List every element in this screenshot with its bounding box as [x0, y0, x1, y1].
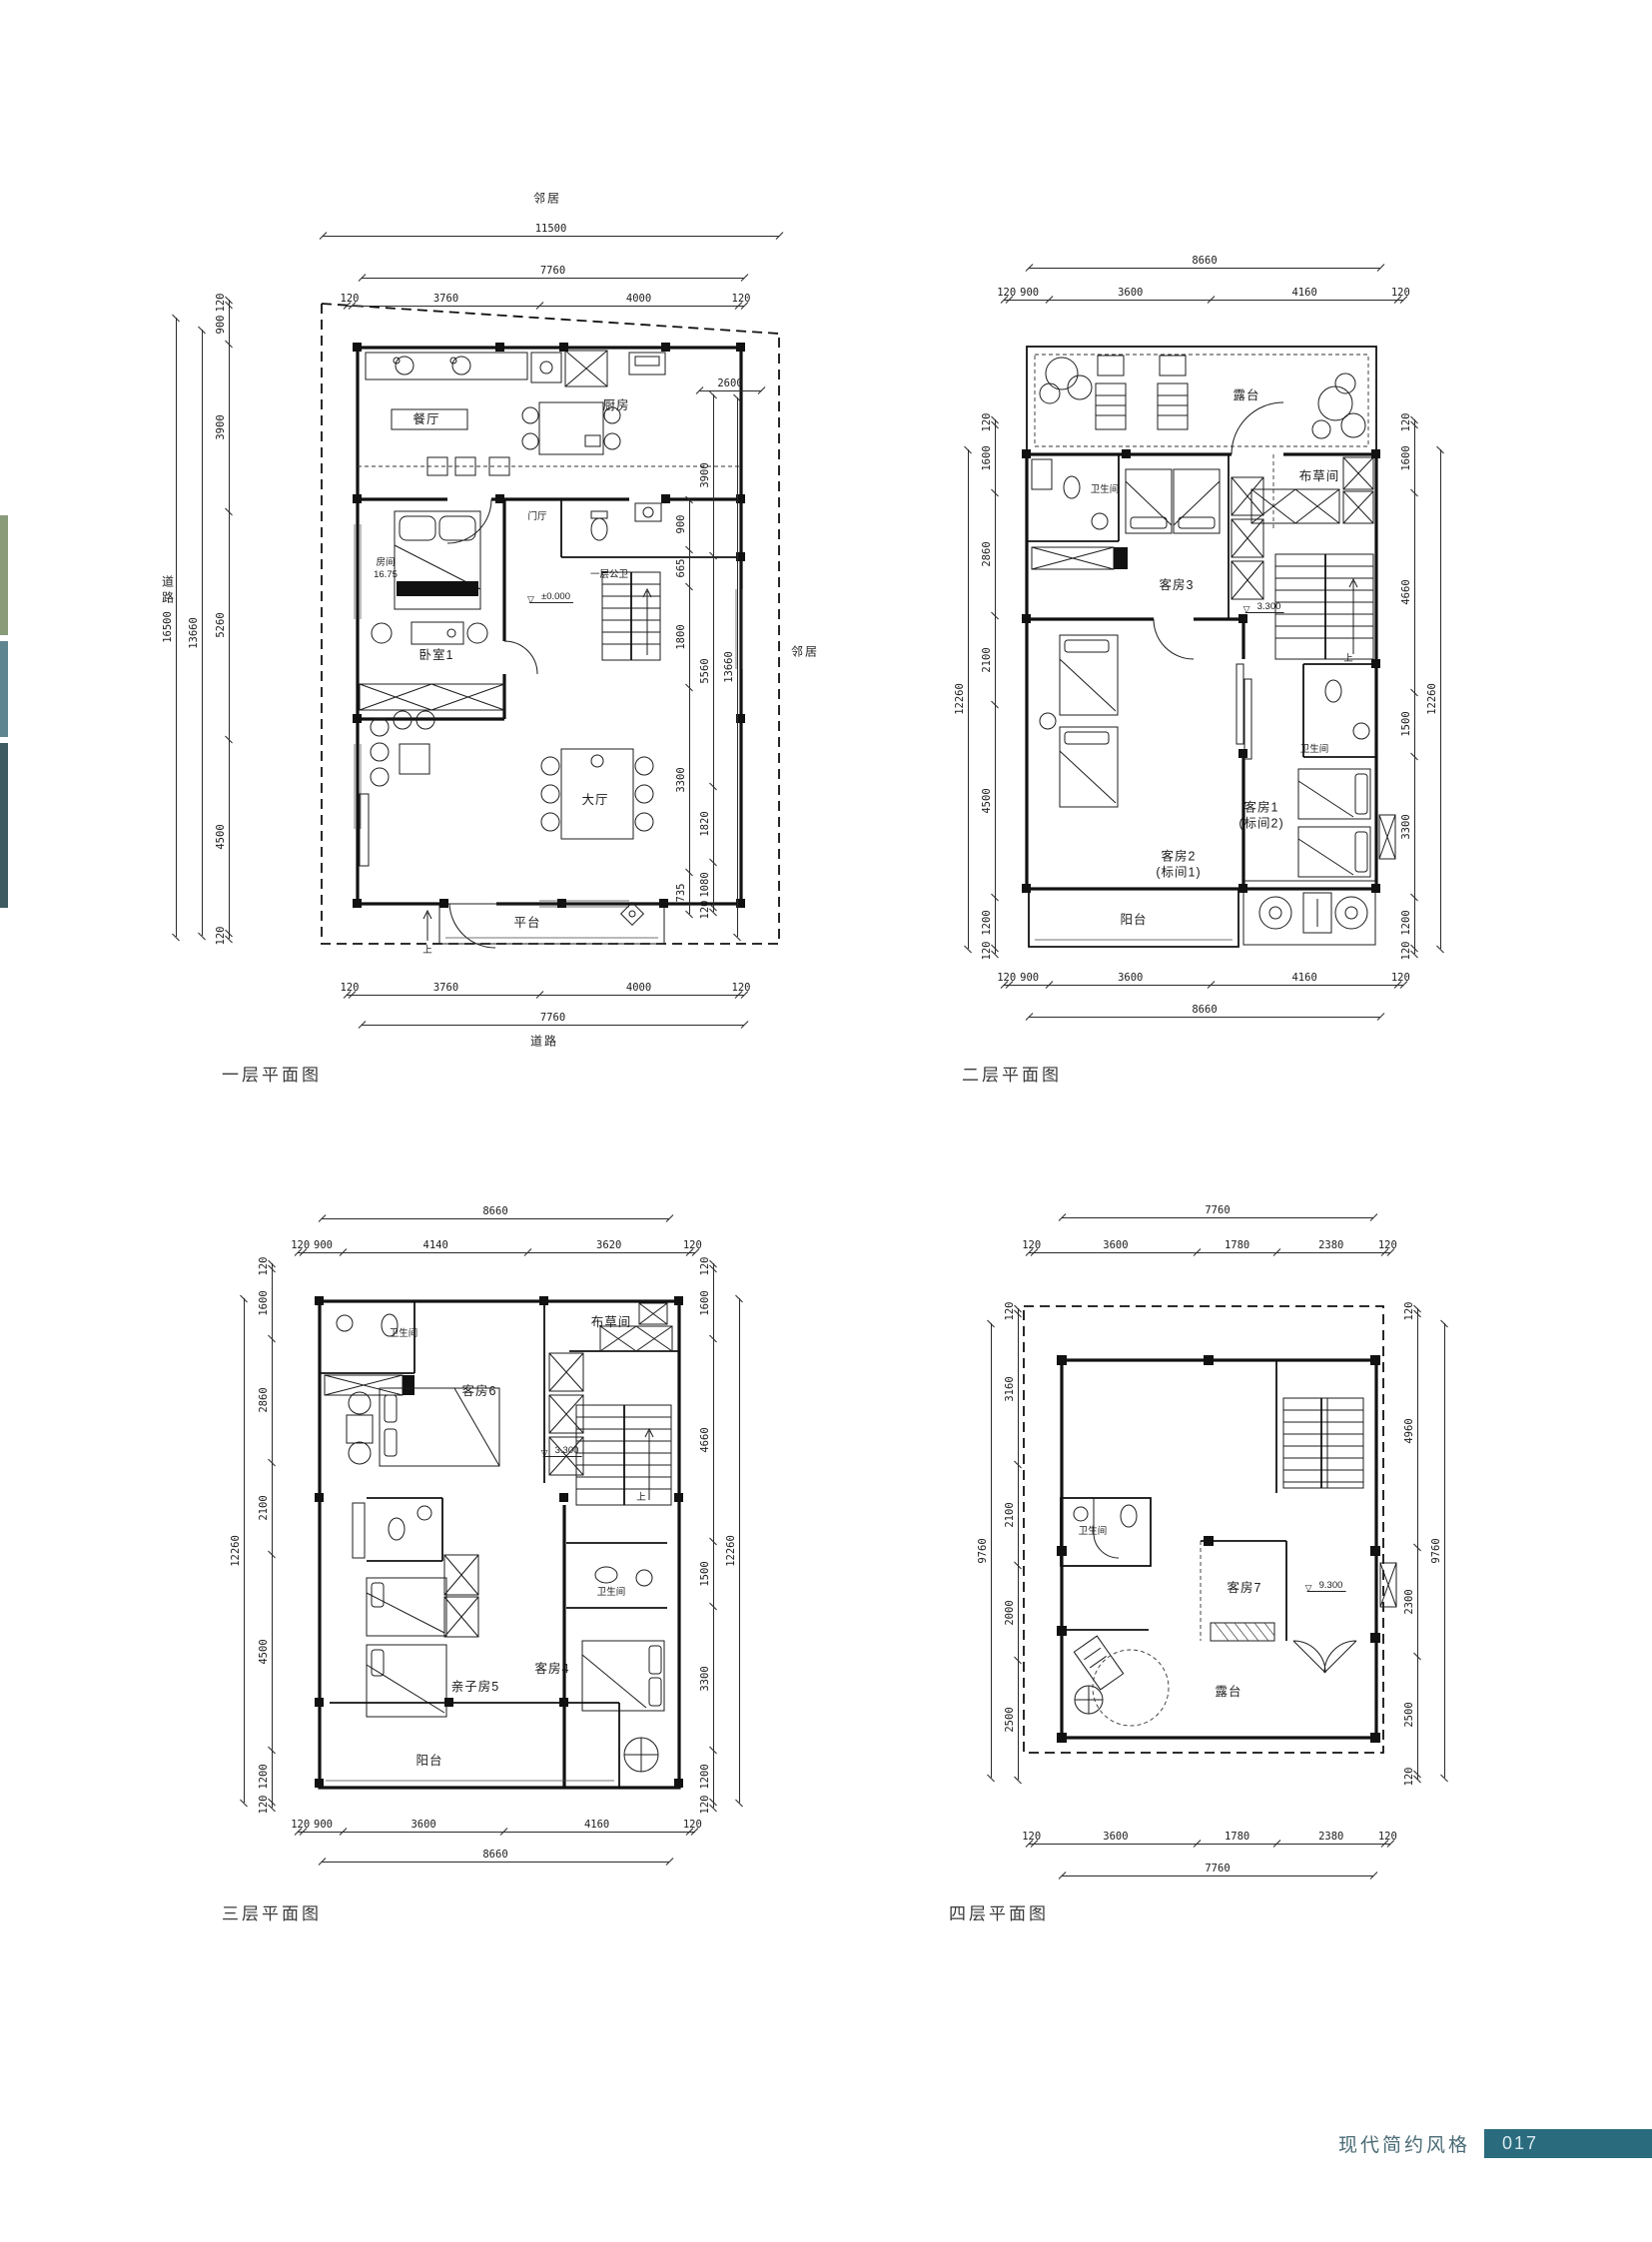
- room-label: 布草间: [591, 1315, 632, 1331]
- dim-chain: 12260: [954, 449, 969, 949]
- edge-photo-strip-3: [0, 743, 8, 908]
- dim-value: 2500: [1004, 1661, 1019, 1780]
- shaft-box: [1379, 815, 1395, 859]
- dim-value: 120: [1398, 286, 1403, 301]
- columns-f2: [1022, 449, 1380, 893]
- level-label: 3.300: [543, 1445, 582, 1457]
- stairs-f3: [576, 1405, 671, 1505]
- outer-walls: [320, 1301, 679, 1788]
- dim-value: 2380: [1277, 1830, 1385, 1845]
- bathroom-topleft: [320, 1301, 414, 1395]
- kitchen-counter: [366, 351, 665, 386]
- dim-value: 16500: [162, 318, 177, 937]
- dim-chain: 16500: [162, 318, 177, 937]
- dim-chain: 12016002860210045001200120: [258, 1263, 273, 1808]
- stairs-f2: [1275, 554, 1373, 659]
- level-label: 9.300: [1307, 1580, 1346, 1592]
- dim-value: 9760: [1430, 1323, 1445, 1778]
- closet-mid: [444, 1555, 478, 1637]
- room-label: 露台: [1215, 1685, 1241, 1701]
- dim-value: 13660: [188, 330, 203, 936]
- dim-chain: 12260: [725, 1298, 740, 1803]
- sliding-door: [1237, 664, 1243, 744]
- dim-value: 1600: [981, 424, 996, 492]
- cabinet-row: [1032, 547, 1128, 569]
- dim-value: 8660: [1029, 1003, 1380, 1018]
- dim-value: 3600: [1050, 971, 1212, 986]
- dim-chain: 12016002860210045001200120: [981, 419, 996, 954]
- dim-value: 4960: [1403, 1314, 1418, 1548]
- dim-value: 7760: [362, 1011, 744, 1026]
- dim-value: 900: [215, 305, 230, 344]
- outer-walls: [1062, 1360, 1376, 1738]
- dim-chain: 120360017802380120: [1029, 1830, 1390, 1845]
- dim-value: 4660: [1400, 493, 1415, 692]
- plan-title: 一层平面图: [222, 1061, 322, 1086]
- room-label: 卫生间: [390, 1328, 418, 1340]
- dim-value: 3300: [1400, 756, 1415, 897]
- room-label: 阳台: [1120, 913, 1147, 929]
- door-mid: [1154, 619, 1194, 659]
- stairs-f1: [602, 572, 660, 660]
- room-label: 客房7: [1228, 1581, 1262, 1597]
- dim-chain: 1203160210020002500: [1004, 1308, 1019, 1780]
- family-room-beds: [367, 1578, 446, 1717]
- wardrobe: [360, 684, 504, 710]
- dim-value: 3600: [1034, 1830, 1197, 1845]
- room-label: 平台: [513, 916, 540, 932]
- dim-value: 900: [1009, 286, 1049, 301]
- dim-value: 11500: [323, 222, 779, 237]
- dim-value: 1600: [699, 1268, 714, 1338]
- dim-chain: 12090036004160120: [1004, 286, 1403, 301]
- dim-value: 8660: [322, 1204, 669, 1219]
- guestroom3-beds: [1126, 469, 1220, 533]
- columns-f3: [315, 1296, 683, 1788]
- room-label: 一层公卫: [590, 569, 628, 581]
- dim-chain: 9760: [977, 1323, 992, 1778]
- dim-value: 3760: [353, 292, 539, 307]
- room-label: 客房4: [535, 1662, 570, 1678]
- room-label: 布草间: [1299, 469, 1340, 485]
- round-table: [624, 1738, 658, 1772]
- dim-chain: 12090041403620120: [298, 1238, 695, 1253]
- edge-photo-strip-2: [0, 641, 8, 737]
- shaft-box: [1380, 1563, 1396, 1607]
- lounge-chairs: [371, 711, 434, 786]
- dim-value: 1600: [1400, 424, 1415, 492]
- dim-chain: 12037604000120: [347, 292, 744, 307]
- dim-chain: 120496023002500120: [1403, 1308, 1418, 1780]
- room-label: 客房2 (标间1): [1156, 849, 1201, 880]
- context-label: 道路: [530, 1033, 558, 1050]
- dim-chain: 7760: [1062, 1862, 1373, 1876]
- bathroom-mid: [353, 1498, 442, 1561]
- dim-chain: 3900556018201080120: [699, 394, 714, 912]
- dim-chain: 13660: [723, 397, 738, 937]
- room-label: 卫生间: [1091, 484, 1120, 496]
- dim-value: 4500: [258, 1554, 273, 1750]
- room-label: 阳台: [415, 1754, 442, 1770]
- plan-title: 三层平面图: [222, 1899, 322, 1924]
- guestroom2-beds: [1040, 635, 1118, 807]
- dim-value: 120: [1385, 1238, 1390, 1253]
- dim-chain: 2600: [699, 376, 761, 391]
- door-arc: [447, 499, 491, 543]
- terrace-furniture: [1074, 1636, 1169, 1726]
- dim-value: 120: [699, 1803, 714, 1808]
- dim-value: 4160: [1212, 286, 1398, 301]
- dim-chain: 12016004660150033001200120: [1400, 419, 1415, 954]
- room-label: 客房3: [1160, 578, 1195, 594]
- dim-value: 2500: [1403, 1656, 1418, 1774]
- dim-value: 4000: [539, 981, 738, 996]
- dim-value: 13660: [723, 397, 738, 937]
- dim-chain: 7760: [362, 1011, 744, 1026]
- dim-chain: 12090036004160120: [1004, 971, 1403, 986]
- linen-room: [1251, 454, 1373, 529]
- dim-value: 3600: [344, 1818, 504, 1833]
- dim-value: 1800: [675, 587, 690, 688]
- dim-value: 3620: [528, 1238, 690, 1253]
- dim-value: 7760: [362, 264, 744, 279]
- dim-value: 735: [675, 873, 690, 914]
- dim-value: 1600: [258, 1268, 273, 1338]
- dim-chain: 90066518003300735: [675, 499, 690, 914]
- dim-value: 8660: [322, 1848, 669, 1863]
- terrace-loungers: [1096, 356, 1188, 429]
- dim-value: 120: [1400, 949, 1415, 954]
- dim-value: 5260: [215, 512, 230, 739]
- dim-value: 4500: [215, 739, 230, 934]
- dim-chain: 7760: [362, 264, 744, 279]
- dim-value: 120: [1403, 1774, 1418, 1780]
- dim-value: 8660: [1029, 254, 1380, 269]
- dim-chain: 120900390052604500120: [215, 300, 230, 939]
- dim-value: 3160: [1004, 1314, 1019, 1465]
- dim-chain: 12037604000120: [347, 981, 744, 996]
- level-label: 3.300: [1245, 601, 1284, 613]
- dim-value: 7760: [1062, 1862, 1373, 1876]
- dim-value: 9760: [977, 1323, 992, 1778]
- room-label: 亲子房5: [451, 1680, 499, 1696]
- dim-chain: 9760: [1430, 1323, 1445, 1778]
- room-label: 房间 16.75: [374, 557, 398, 581]
- dim-value: 12260: [230, 1298, 245, 1803]
- dim-value: 12260: [954, 449, 969, 949]
- dim-value: 1500: [1400, 692, 1415, 756]
- floor4-drawing: [1019, 1288, 1408, 1808]
- dim-value: 1500: [699, 1541, 714, 1606]
- dim-value: 4160: [1212, 971, 1398, 986]
- guestroom4-bed: [582, 1641, 664, 1711]
- dim-value: 900: [303, 1238, 343, 1253]
- room-label: 大厅: [581, 793, 608, 809]
- context-label: 邻居: [791, 643, 819, 660]
- context-label: 邻居: [533, 190, 561, 207]
- dim-value: 4160: [504, 1818, 690, 1833]
- plan-title: 四层平面图: [949, 1899, 1049, 1924]
- dim-value: 900: [303, 1818, 343, 1833]
- terrace-trees: [1040, 358, 1365, 438]
- floor4-plan: [1019, 1288, 1408, 1808]
- dim-chain: 11500: [323, 222, 779, 237]
- footer-page-bar: 017: [1484, 2129, 1652, 2158]
- dim-value: 1820: [699, 787, 714, 863]
- dim-chain: 12016004660150033001200120: [699, 1263, 714, 1808]
- bathroom-topleft: [1027, 454, 1119, 541]
- dim-chain: 13660: [188, 330, 203, 936]
- dim-chain: 120360017802380120: [1029, 1238, 1390, 1253]
- entry-door: [449, 904, 495, 948]
- dim-value: 120: [738, 292, 744, 307]
- room-label: 卫生间: [1079, 1526, 1108, 1538]
- dim-value: 120: [1385, 1830, 1390, 1845]
- dim-value: 120: [699, 907, 714, 912]
- dim-value: 3600: [1034, 1238, 1197, 1253]
- room-label: 厨房: [602, 398, 629, 414]
- footer-page-number: 017: [1502, 2133, 1538, 2154]
- room-label: 卫生间: [1300, 744, 1329, 756]
- dim-chain: 12260: [1426, 449, 1441, 949]
- guestroom1-beds: [1298, 769, 1370, 877]
- room-label: 上: [1343, 653, 1353, 665]
- closet-stack: [1232, 477, 1263, 599]
- dim-value: 2860: [981, 493, 996, 615]
- dim-value: 4500: [981, 705, 996, 898]
- dim-value: 900: [1009, 971, 1049, 986]
- floor2-drawing: [1004, 330, 1403, 969]
- dim-value: 120: [981, 949, 996, 954]
- dim-value: 2100: [1004, 1465, 1019, 1565]
- book-page: 一层平面图邻居道路邻居道路餐厅厨房房间 16.75门厅一层公卫卧室1大厅平台上±…: [0, 0, 1652, 2242]
- dim-value: 120: [690, 1238, 695, 1253]
- room-label: 上: [636, 1492, 646, 1504]
- dim-value: 2600: [699, 376, 761, 391]
- dim-value: 120: [258, 1803, 273, 1808]
- dim-value: 3900: [215, 344, 230, 512]
- room-label: 露台: [1233, 388, 1259, 404]
- bathroom-f1: [561, 499, 741, 557]
- dim-value: 12260: [1426, 449, 1441, 949]
- dim-value: 2100: [258, 1463, 273, 1555]
- bedroom-door: [504, 641, 537, 674]
- balcony-f3: [326, 1703, 619, 1788]
- room-label: 门厅: [527, 511, 546, 523]
- dim-value: 1780: [1197, 1830, 1277, 1845]
- dim-value: 3300: [699, 1607, 714, 1751]
- dim-value: 900: [675, 499, 690, 549]
- floor2-plan: [1004, 330, 1403, 969]
- dim-chain: 12090036004160120: [298, 1818, 695, 1833]
- dim-value: 3600: [1050, 286, 1212, 301]
- room-label: 客房6: [462, 1384, 497, 1400]
- dim-value: 1780: [1197, 1238, 1277, 1253]
- room-label: 上: [422, 945, 432, 957]
- dim-value: 3300: [675, 688, 690, 873]
- dim-chain: 8660: [322, 1204, 669, 1219]
- outer-walls: [1027, 454, 1376, 889]
- dim-value: 2860: [258, 1338, 273, 1463]
- dim-chain: 12260: [230, 1298, 245, 1803]
- dim-chain: 7760: [1062, 1203, 1373, 1218]
- edge-photo-strip-1: [0, 515, 8, 635]
- dim-value: 3900: [699, 394, 714, 556]
- tv-cabinet: [360, 794, 369, 866]
- dim-value: 120: [738, 981, 744, 996]
- stairs-f4: [1283, 1398, 1363, 1488]
- dim-value: 2000: [1004, 1565, 1019, 1661]
- dim-value: 12260: [725, 1298, 740, 1803]
- dim-value: 3760: [353, 981, 539, 996]
- dim-chain: 8660: [1029, 254, 1380, 269]
- room-label: 卫生间: [597, 1587, 626, 1599]
- room-label: 客房1 (标间2): [1239, 800, 1283, 831]
- dim-value: 4000: [539, 292, 738, 307]
- dim-value: 665: [675, 549, 690, 586]
- bathroom-right: [1303, 664, 1376, 757]
- room-label: 卧室1: [419, 648, 454, 664]
- dim-value: 120: [215, 934, 230, 939]
- page-footer: 现代简约风格 017: [1338, 2128, 1652, 2159]
- dim-value: 5560: [699, 556, 714, 787]
- dim-chain: 8660: [322, 1848, 669, 1863]
- plan-title: 二层平面图: [962, 1061, 1062, 1086]
- dim-value: 7760: [1062, 1203, 1373, 1218]
- dim-value: 2380: [1277, 1238, 1385, 1253]
- room-label: 餐厅: [413, 412, 439, 428]
- dim-value: 4660: [699, 1338, 714, 1541]
- level-label: ±0.000: [529, 591, 573, 603]
- dim-value: 120: [1398, 971, 1403, 986]
- footer-style-label: 现代简约风格: [1338, 2130, 1470, 2157]
- dim-value: 2300: [1403, 1548, 1418, 1657]
- dim-value: 2100: [981, 615, 996, 705]
- floor3-plan: [295, 1293, 704, 1808]
- dim-value: 4140: [344, 1238, 528, 1253]
- floor3-drawing: [295, 1293, 704, 1808]
- dim-chain: 8660: [1029, 1003, 1380, 1018]
- dim-value: 120: [690, 1818, 695, 1833]
